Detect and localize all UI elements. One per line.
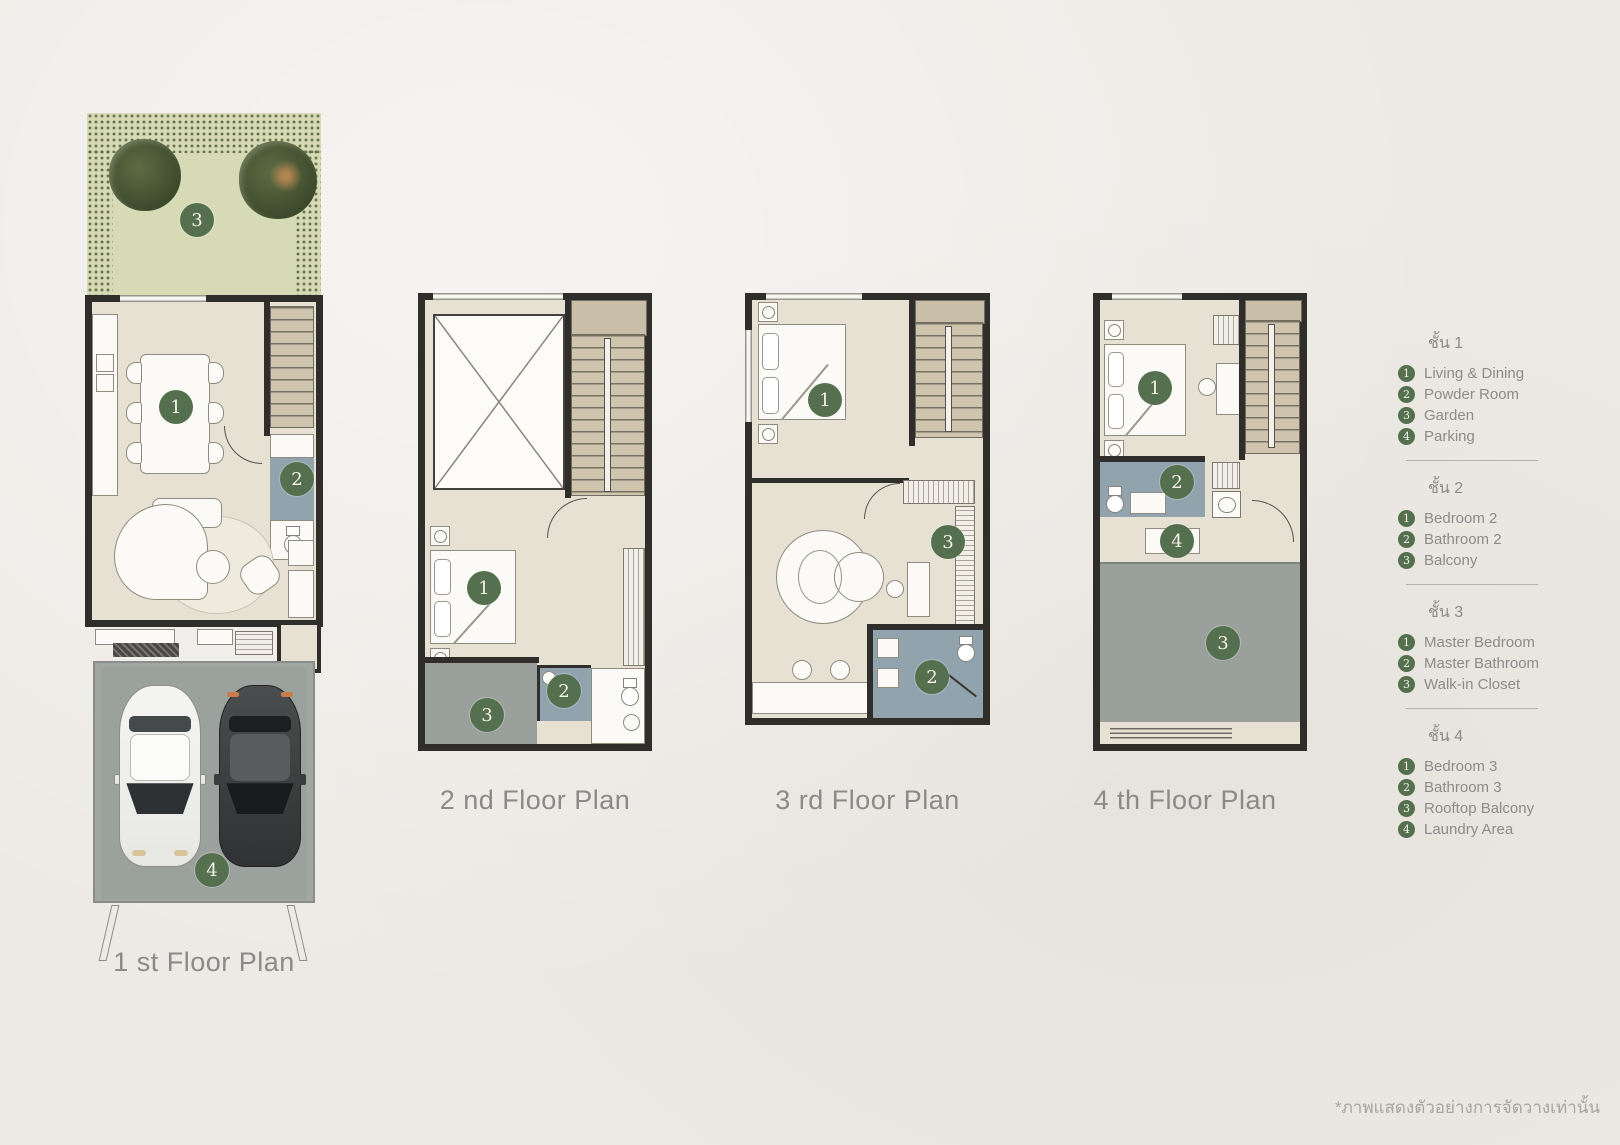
door-arc — [864, 483, 900, 519]
legend-badge: 1 — [1398, 758, 1415, 775]
legend-badge: 1 — [1398, 634, 1415, 651]
legend-item: 4 Parking — [1398, 426, 1568, 447]
rooftop-balcony — [1100, 562, 1300, 722]
legend-item-label: Bathroom 2 — [1424, 531, 1502, 548]
badge-living-dining: 1 — [159, 390, 193, 424]
legend-item-label: Bedroom 2 — [1424, 510, 1497, 527]
legend-item-label: Laundry Area — [1424, 821, 1513, 838]
badge-bedroom2: 1 — [467, 571, 501, 605]
door-arc — [1252, 500, 1294, 542]
legend-item-label: Rooftop Balcony — [1424, 800, 1534, 817]
dining-chair — [126, 442, 142, 464]
window — [120, 295, 206, 302]
plan-label: 2 nd Floor Plan — [418, 785, 652, 816]
legend-section-floor3: ชั้น 3 1 Master Bedroom 2 Master Bathroo… — [1398, 600, 1568, 709]
plan-label: 4 th Floor Plan — [1075, 785, 1295, 816]
legend-section-floor4: ชั้น 4 1 Bedroom 3 2 Bathroom 3 3 Roofto… — [1398, 724, 1568, 840]
legend-badge: 2 — [1398, 386, 1415, 403]
first-floor-plan: 3 1 2 — [85, 105, 323, 995]
legend-item-label: Parking — [1424, 428, 1475, 445]
legend-item: 2 Master Bathroom — [1398, 653, 1568, 674]
balcony-railing — [1110, 728, 1232, 739]
nightstand — [1104, 320, 1124, 340]
staircase — [270, 306, 314, 428]
plan-label: 3 rd Floor Plan — [745, 785, 990, 816]
badge-laundry-area: 4 — [1160, 524, 1194, 558]
car-rear-window — [229, 716, 291, 732]
legend-item: 4 Laundry Area — [1398, 819, 1568, 840]
pillow — [1108, 352, 1124, 387]
planter-bench — [197, 629, 233, 645]
legend-title: ชั้น 4 — [1428, 724, 1568, 749]
legend-item: 1 Living & Dining — [1398, 363, 1568, 384]
car-taillight — [227, 692, 239, 697]
living-dining-room: 1 2 — [85, 295, 323, 627]
legend-item-label: Bedroom 3 — [1424, 758, 1497, 775]
legend-item: 3 Balcony — [1398, 550, 1568, 571]
legend-badge: 3 — [1398, 800, 1415, 817]
legend-divider — [1406, 708, 1538, 709]
badge-bathroom2: 2 — [547, 674, 581, 708]
toilet — [957, 636, 975, 662]
legend-item-label: Bathroom 3 — [1424, 779, 1502, 796]
legend-badge: 2 — [1398, 655, 1415, 672]
legend-section-floor1: ชั้น 1 1 Living & Dining 2 Powder Room 3… — [1398, 331, 1568, 461]
badge-master-bedroom: 1 — [808, 383, 842, 417]
badge-bedroom3: 1 — [1138, 371, 1172, 405]
legend-item-label: Balcony — [1424, 552, 1477, 569]
tree-icon — [109, 139, 181, 211]
car-rear-window — [129, 716, 191, 732]
floor2-shell: 1 3 2 — [418, 293, 652, 751]
legend-badge: 3 — [1398, 407, 1415, 424]
legend-divider — [1406, 584, 1538, 585]
plan-label: 1 st Floor Plan — [85, 947, 323, 978]
legend-item: 2 Powder Room — [1398, 384, 1568, 405]
closet-cabinet — [903, 480, 975, 504]
window — [745, 330, 752, 422]
pillow — [1108, 394, 1124, 429]
legend-title: ชั้น 1 — [1428, 331, 1568, 356]
legend-divider — [1406, 460, 1538, 461]
powder-sink-cabinet — [270, 434, 314, 458]
legend-badge: 4 — [1398, 428, 1415, 445]
nightstand — [758, 302, 778, 322]
parking-area: 4 — [93, 661, 315, 903]
badge-master-bathroom: 2 — [915, 660, 949, 694]
drain-grate — [235, 631, 273, 655]
desk — [907, 562, 930, 617]
kitchen-stove — [96, 374, 114, 392]
pillow — [762, 333, 779, 370]
stair-rail — [1268, 324, 1275, 448]
stair-rail — [604, 338, 611, 492]
car-mirror — [200, 774, 206, 785]
stool — [830, 660, 850, 680]
entry-mat — [113, 643, 179, 657]
badge-garden: 3 — [180, 203, 214, 237]
legend-badge: 1 — [1398, 365, 1415, 382]
car-dark — [219, 685, 301, 867]
legend-badge: 3 — [1398, 676, 1415, 693]
void-open-to-below — [433, 314, 565, 490]
desk-chair — [1198, 378, 1216, 396]
chair-cushion — [798, 550, 842, 604]
legend-title: ชั้น 3 — [1428, 600, 1568, 625]
badge-powder-room: 2 — [280, 462, 314, 496]
car-mirror — [300, 774, 306, 785]
legend-item-label: Master Bedroom — [1424, 634, 1535, 651]
legend-item: 2 Bathroom 2 — [1398, 529, 1568, 550]
floor3-shell: 1 3 2 — [745, 293, 990, 725]
cabinet — [288, 540, 314, 566]
legend-badge: 1 — [1398, 510, 1415, 527]
legend-item-label: Powder Room — [1424, 386, 1519, 403]
dining-chair — [126, 402, 142, 424]
stair-landing — [1245, 300, 1302, 322]
legend-badge: 3 — [1398, 552, 1415, 569]
window — [766, 293, 862, 300]
legend-badge: 4 — [1398, 821, 1415, 838]
washbasin — [623, 714, 640, 731]
legend-item-label: Living & Dining — [1424, 365, 1524, 382]
car-white — [119, 685, 201, 867]
badge-bathroom3: 2 — [1160, 465, 1194, 499]
legend-item: 3 Walk-in Closet — [1398, 674, 1568, 695]
footnote: *ภาพแสดงตัวอย่างการจัดวางเท่านั้น — [1335, 1094, 1600, 1121]
door-arc — [547, 498, 587, 538]
dining-chair — [208, 402, 224, 424]
coffee-table — [196, 550, 230, 584]
legend-item: 3 Rooftop Balcony — [1398, 798, 1568, 819]
car-taillight — [281, 692, 293, 697]
car-mirror — [114, 774, 120, 785]
window — [433, 293, 563, 300]
door-arc — [224, 426, 262, 464]
legend-item-label: Garden — [1424, 407, 1474, 424]
sink — [877, 668, 899, 688]
legend-badge: 2 — [1398, 531, 1415, 548]
car-headlight — [132, 850, 146, 856]
dining-chair — [208, 362, 224, 384]
legend-section-floor2: ชั้น 2 1 Bedroom 2 2 Bathroom 2 3 Balcon… — [1398, 476, 1568, 585]
desk — [1216, 363, 1240, 415]
interior-wall — [752, 478, 909, 483]
dining-chair — [126, 362, 142, 384]
car-roof — [130, 734, 191, 781]
car-headlight — [174, 850, 188, 856]
floor4-shell: 1 2 4 3 — [1093, 293, 1307, 751]
vanity-counter — [752, 682, 873, 714]
legend-item: 1 Master Bedroom — [1398, 632, 1568, 653]
void-x-mark — [435, 316, 563, 488]
nightstand — [758, 424, 778, 444]
legend-badge: 2 — [1398, 779, 1415, 796]
tree-icon — [239, 141, 317, 219]
legend-item: 1 Bedroom 3 — [1398, 756, 1568, 777]
legend-title: ชั้น 2 — [1428, 476, 1568, 501]
window — [1112, 293, 1182, 300]
toilet — [621, 678, 639, 706]
badge-walkin-closet: 3 — [931, 525, 965, 559]
legend: ชั้น 1 1 Living & Dining 2 Powder Room 3… — [1398, 331, 1568, 840]
floorplan-sheet: { "colors": { "background": "#edeae5", "… — [0, 0, 1620, 1145]
stool — [886, 580, 904, 598]
sofa-curved — [114, 504, 208, 600]
badge-rooftop-balcony: 3 — [1206, 626, 1240, 660]
badge-parking: 4 — [195, 853, 229, 887]
legend-item-label: Master Bathroom — [1424, 655, 1539, 672]
car-windshield — [126, 783, 193, 814]
cabinet — [288, 570, 314, 618]
toilet — [1106, 486, 1124, 513]
third-floor-plan: 1 3 2 3 rd Floor Plan — [745, 293, 990, 823]
pillow — [434, 601, 451, 637]
stair-rail — [945, 326, 952, 432]
washing-machine — [1212, 491, 1241, 518]
dining-chair — [208, 442, 224, 464]
car-windshield — [226, 783, 293, 814]
fourth-floor-plan: 1 2 4 3 4 th Floor Plan — [1075, 293, 1325, 823]
badge-balcony: 3 — [470, 698, 504, 732]
wardrobe — [623, 548, 645, 666]
stair-landing — [571, 300, 647, 336]
nightstand — [430, 526, 450, 546]
stool — [792, 660, 812, 680]
legend-item-label: Walk-in Closet — [1424, 676, 1520, 693]
sink — [877, 638, 899, 658]
bath-vanity — [1130, 492, 1166, 514]
laundry-shelf — [1212, 462, 1240, 489]
car-mirror — [214, 774, 220, 785]
legend-item: 3 Garden — [1398, 405, 1568, 426]
pillow — [762, 377, 779, 414]
car-roof — [230, 734, 291, 781]
pillow — [434, 559, 451, 595]
kitchen-sink — [96, 354, 114, 372]
stair-landing — [915, 300, 985, 324]
second-floor-plan: 1 3 2 2 nd Floor Plan — [418, 293, 652, 823]
kitchen-counter — [92, 314, 118, 496]
legend-item: 2 Bathroom 3 — [1398, 777, 1568, 798]
legend-item: 1 Bedroom 2 — [1398, 508, 1568, 529]
